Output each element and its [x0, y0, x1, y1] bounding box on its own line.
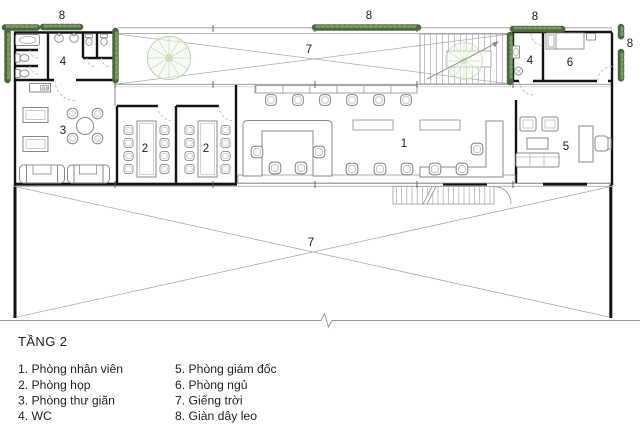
bedroom-label: 6 — [567, 57, 573, 69]
sofa — [516, 153, 559, 167]
skylight-label: 7 — [306, 44, 312, 56]
legend-item-5: 5. Phòng giám đốc — [175, 362, 277, 376]
tree-icon — [147, 36, 190, 79]
counter-chairs — [266, 95, 412, 106]
courtyard-lower — [0, 185, 640, 328]
staff-room-label: 1 — [401, 138, 407, 150]
legend-item-6: 6. Phòng ngủ — [175, 378, 248, 392]
director-desk — [579, 126, 593, 162]
sink — [55, 34, 64, 43]
tree-icon — [446, 43, 483, 80]
legend-item-1: 1. Phòng nhân viên — [18, 362, 123, 376]
skylight-top — [117, 28, 612, 84]
legend-item-2: 2. Phòng họp — [18, 378, 91, 392]
legend-item-7: 7. Giếng trời — [175, 394, 243, 408]
director-room-label: 5 — [563, 141, 569, 153]
side-table — [353, 120, 393, 130]
toilet — [100, 34, 107, 45]
trellis-label: 8 — [59, 10, 65, 22]
window-counter — [255, 86, 417, 94]
skylight-label: 7 — [308, 237, 314, 249]
staff-room-furniture — [238, 86, 515, 184]
side-table — [420, 120, 460, 130]
round-table — [77, 118, 94, 135]
sink — [70, 34, 79, 43]
meeting-room-label: 2 — [142, 143, 148, 155]
floor-plan-drawing: 8 8 8 8 7 7 4 4 3 2 2 1 5 6 TẦNG 2 1. Ph… — [0, 0, 640, 431]
entry-stairs — [393, 186, 511, 205]
break-line — [0, 314, 640, 328]
lounge-label: 3 — [60, 125, 66, 137]
page-title: TẦNG 2 — [18, 334, 67, 349]
meeting-room-label: 2 — [203, 143, 209, 155]
bedroom-wc-furniture — [513, 33, 596, 75]
sofa — [20, 165, 65, 183]
sofa — [68, 165, 110, 183]
coffee-table — [527, 138, 548, 149]
wc-label: 4 — [60, 56, 67, 68]
legend: TẦNG 2 1. Phòng nhân viên 2. Phòng họp 3… — [18, 334, 277, 423]
toilet — [85, 34, 92, 45]
main-stairs — [420, 34, 512, 84]
trellis-label: 8 — [532, 11, 538, 23]
wc-label: 4 — [527, 55, 534, 67]
floor-plan-page: 8 8 8 8 7 7 4 4 3 2 2 1 5 6 TẦNG 2 1. Ph… — [0, 0, 640, 431]
toilet — [20, 55, 29, 62]
legend-item-4: 4. WC — [18, 409, 52, 423]
office-chair — [595, 136, 608, 151]
trellis-label: 8 — [627, 38, 633, 50]
toilet — [20, 70, 29, 77]
trellis-label: 8 — [366, 10, 372, 22]
legend-item-8: 8. Giàn dây leo — [175, 409, 257, 423]
legend-item-3: 3. Phòng thư giãn — [18, 394, 115, 408]
nightstand — [587, 34, 596, 41]
